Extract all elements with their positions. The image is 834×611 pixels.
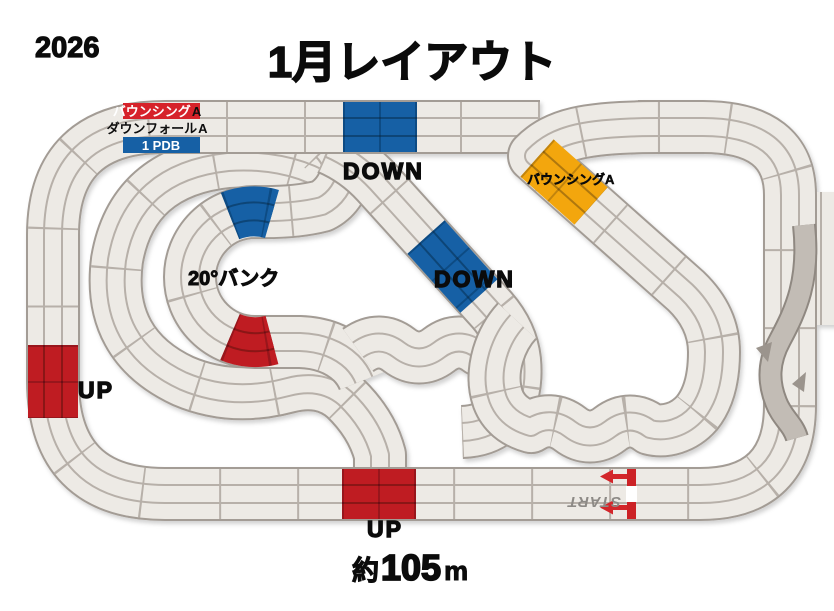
year-label: 2026	[35, 32, 100, 64]
bank-label: 20°バンク	[188, 267, 279, 290]
course-length: 約105m	[352, 547, 468, 588]
page-title: 1月レイアウト	[268, 38, 556, 87]
legend-row-pdb: 1 PDB	[142, 138, 180, 153]
up-label-left: UP	[78, 377, 114, 403]
start-gap	[626, 486, 637, 502]
legend-row-downfall: ダウンフォールA	[106, 121, 208, 136]
start-label: START	[566, 493, 620, 510]
down-label-diagonal: DOWN	[434, 266, 515, 292]
section-bank-top-slope	[230, 211, 272, 216]
up-label-bottom: UP	[367, 516, 403, 542]
start-bar-top	[627, 469, 636, 486]
start-bar-bottom	[627, 502, 636, 519]
down-label-top: DOWN	[343, 158, 424, 184]
track-canvas: バウンシングA ダウンフォールA 1 PDB 2026 1月レイアウト DOWN…	[0, 0, 834, 611]
track-network: バウンシングA ダウンフォールA 1 PDB	[53, 103, 812, 519]
layout-diagram: バウンシングA ダウンフォールA 1 PDB 2026 1月レイアウト DOWN…	[0, 0, 834, 611]
section-bank-bottom-slope	[230, 337, 272, 342]
legend-row-bouncing: バウンシングA	[113, 104, 202, 119]
bouncing-label: バウンシングA	[527, 172, 615, 187]
